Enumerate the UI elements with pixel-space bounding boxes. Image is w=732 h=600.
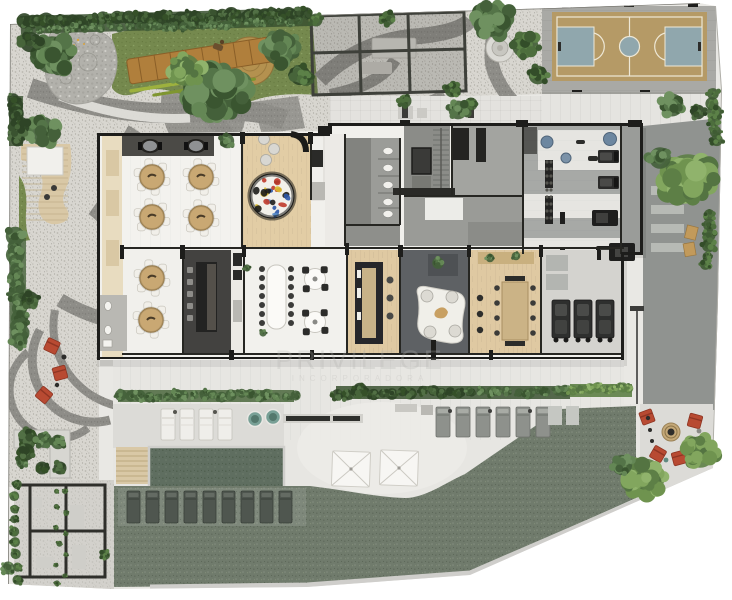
svg-text:INCORPORADORA: INCORPORADORA [292,374,429,383]
svg-text:PRIVILEGE: PRIVILEGE [275,345,445,375]
